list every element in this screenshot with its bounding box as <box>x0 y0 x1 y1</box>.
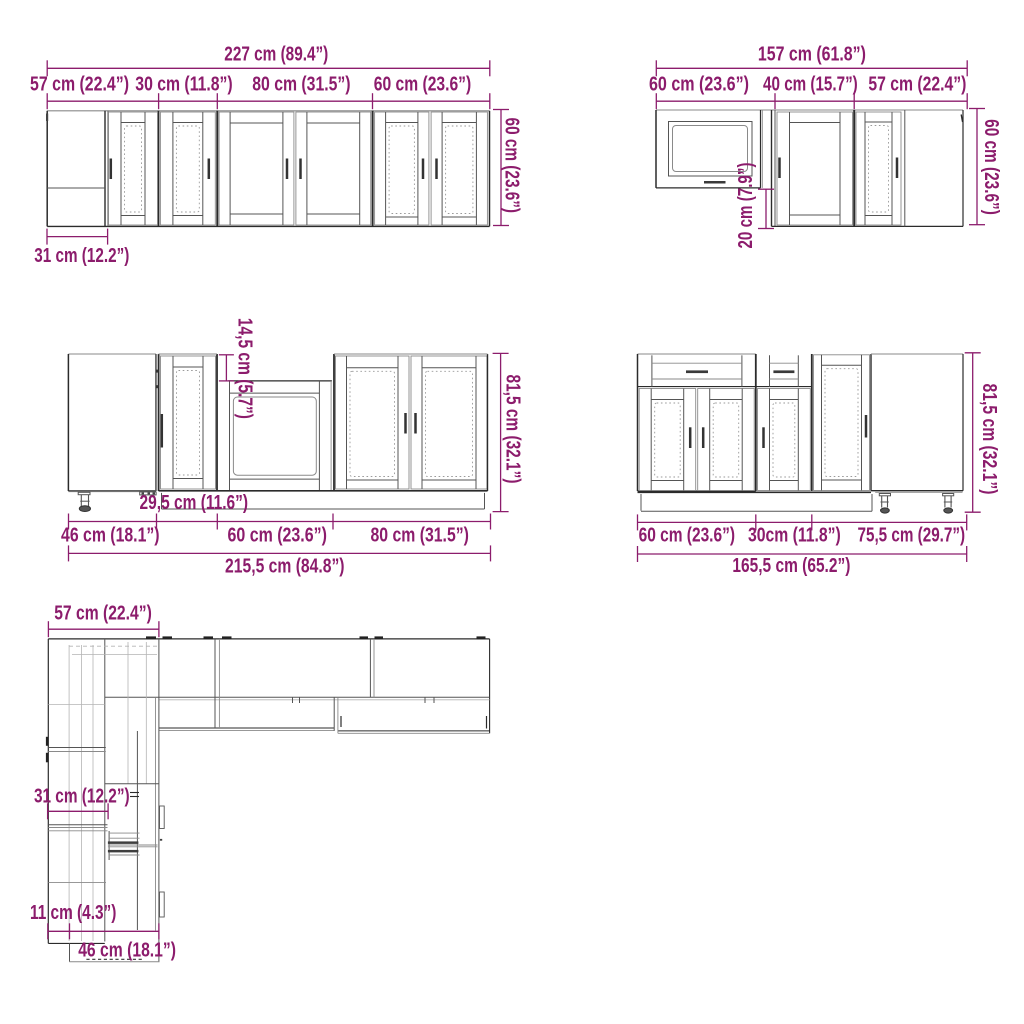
svg-text:157 cm (61.8”): 157 cm (61.8”) <box>758 43 866 65</box>
svg-text:80 cm (31.5”): 80 cm (31.5”) <box>252 74 350 96</box>
svg-text:29,5 cm (11.6”): 29,5 cm (11.6”) <box>140 492 249 514</box>
svg-text:75,5 cm (29.7”): 75,5 cm (29.7”) <box>858 525 966 547</box>
svg-text:14,5 cm (5.7”): 14,5 cm (5.7”) <box>233 318 255 419</box>
svg-text:60 cm (23.6”): 60 cm (23.6”) <box>649 74 749 96</box>
svg-text:60 cm (23.6”): 60 cm (23.6”) <box>228 525 327 547</box>
svg-text:11 cm (4.3”): 11 cm (4.3”) <box>30 902 116 924</box>
svg-text:60 cm (23.6”): 60 cm (23.6”) <box>980 119 1002 215</box>
svg-text:81,5 cm (32.1”): 81,5 cm (32.1”) <box>978 383 1000 494</box>
svg-text:60 cm (23.6”): 60 cm (23.6”) <box>639 525 735 547</box>
svg-text:30cm (11.8”): 30cm (11.8”) <box>748 525 841 547</box>
svg-text:81,5 cm (32.1”): 81,5 cm (32.1”) <box>502 375 524 484</box>
svg-text:60 cm (23.6”): 60 cm (23.6”) <box>501 118 523 214</box>
svg-text:20 cm (7.9”): 20 cm (7.9”) <box>735 163 757 249</box>
svg-text:57 cm (22.4”): 57 cm (22.4”) <box>54 603 152 625</box>
svg-text:227 cm (89.4”): 227 cm (89.4”) <box>224 43 328 65</box>
svg-text:215,5 cm (84.8”): 215,5 cm (84.8”) <box>225 555 345 577</box>
svg-text:30 cm (11.8”): 30 cm (11.8”) <box>135 74 232 96</box>
svg-text:31 cm (12.2”): 31 cm (12.2”) <box>34 245 129 267</box>
svg-text:57 cm (22.4”): 57 cm (22.4”) <box>868 74 966 96</box>
svg-text:57 cm (22.4”): 57 cm (22.4”) <box>30 74 129 96</box>
svg-text:31 cm (12.2”): 31 cm (12.2”) <box>34 786 130 808</box>
svg-text:40 cm (15.7”): 40 cm (15.7”) <box>763 74 858 96</box>
svg-text:46 cm (18.1”): 46 cm (18.1”) <box>78 940 176 962</box>
svg-text:165,5 cm (65.2”): 165,5 cm (65.2”) <box>732 555 850 577</box>
svg-text:46 cm (18.1”): 46 cm (18.1”) <box>61 525 160 547</box>
svg-text:80 cm (31.5”): 80 cm (31.5”) <box>371 525 469 547</box>
svg-text:60 cm (23.6”): 60 cm (23.6”) <box>374 74 471 96</box>
